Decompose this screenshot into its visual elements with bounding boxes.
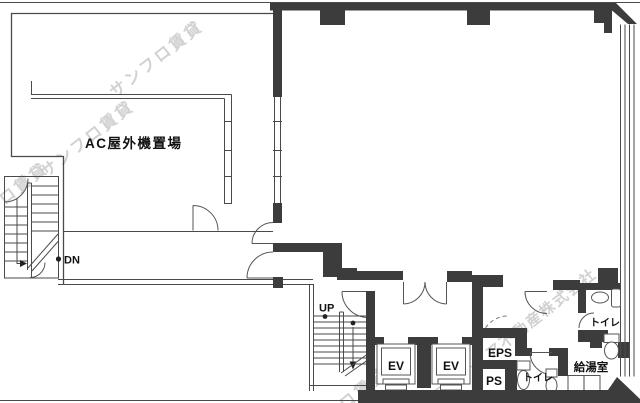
- kitchen-corner-block: [590, 336, 602, 348]
- ps-label: PS: [486, 374, 502, 388]
- north-east-corner-step: [604, 23, 612, 33]
- kitchen-label: 給湯室: [574, 360, 609, 374]
- east-wall-pier: [598, 268, 618, 283]
- core-north-wall-left: [357, 271, 403, 280]
- elevator-door-sill: [383, 379, 409, 384]
- shelf-unit: [612, 289, 621, 307]
- elevator-label: EV: [388, 359, 404, 373]
- core-east-wall: [472, 287, 483, 395]
- up-staircase: UP: [309, 284, 367, 391]
- elevator-door-sill: [438, 379, 464, 384]
- shaft-middle-wall: [417, 345, 431, 388]
- ac-area-door-swing: [193, 206, 218, 231]
- west-door-swing: [247, 252, 273, 278]
- dn-stair-treads-right: [31, 186, 59, 231]
- up-stair-rails: [340, 312, 344, 372]
- toilet-upper-west-wall: [578, 285, 586, 313]
- floorplan-page: サンフロ賃貸 サンフロ賃貸 サンフロ賃貸 サンフロンティア不動産株式会社 サンフ…: [0, 0, 640, 403]
- toilet-lower-label: トイレ: [523, 372, 553, 384]
- ac-area-label: AC屋外機置場: [85, 135, 183, 151]
- sink-basin: [592, 292, 609, 303]
- up-marker-dot: [323, 314, 328, 319]
- elevator-shafts: EV EV: [366, 287, 483, 395]
- up-label: UP: [319, 303, 334, 315]
- elevator-door-sill: [386, 385, 407, 390]
- kitchenette-room: 給湯室: [558, 348, 609, 392]
- west-wall-pier: [273, 277, 283, 288]
- toilet-upper-label: トイレ: [590, 317, 620, 329]
- east-window-lines: [621, 25, 635, 377]
- elevator-door-sill: [441, 385, 462, 390]
- north-wall-column: [320, 10, 345, 25]
- dn-label: DN: [64, 255, 80, 267]
- up-stair-enclosure: [309, 284, 366, 391]
- north-wall-column: [467, 10, 490, 25]
- eps-label: EPS: [488, 346, 512, 360]
- dn-stair-treads-left: [5, 207, 28, 261]
- toilet-upper-room: トイレ: [590, 289, 621, 359]
- toilet-upper-west-spur: [553, 280, 580, 290]
- hall-west-door-swing: [342, 292, 368, 318]
- west-wall-middle: [273, 203, 282, 223]
- west-wall-lower-band: [273, 243, 342, 252]
- dn-stair-rails: [28, 183, 32, 278]
- kitchen-west-wall: [558, 348, 568, 376]
- core-north-wall-right: [447, 271, 472, 282]
- toilet-lower-room: トイレ: [515, 348, 558, 394]
- west-window-lines: [273, 97, 282, 203]
- core-north-wall-step: [337, 268, 357, 280]
- eps-ps-divider: [483, 360, 505, 369]
- dn-stair-walkline: [17, 198, 20, 264]
- elevator-1: EV: [377, 344, 415, 390]
- elevator-2: EV: [432, 344, 470, 390]
- main-room-walls: [247, 3, 637, 377]
- toilet-bowl: [605, 342, 619, 359]
- eps-east-wall: [515, 336, 527, 350]
- corridor-north-wall: [472, 275, 503, 287]
- site-boundary: [0, 3, 640, 401]
- west-strip: [58, 232, 313, 285]
- entrance-double-door: [404, 282, 447, 304]
- ps-east-wall: [505, 360, 517, 392]
- floorplan-drawing: サンフロ賃貸 サンフロ賃貸 サンフロ賃貸 サンフロンティア不動産株式会社 サンフ…: [0, 0, 640, 403]
- north-east-corner-block: [594, 10, 612, 23]
- south-east-chamfer: [608, 377, 640, 403]
- ac-outdoor-unit-area: AC屋外機置場: [12, 14, 274, 285]
- toilet-tank: [604, 334, 619, 343]
- up-stair-treads: [314, 316, 368, 364]
- up-marker-dot: [351, 321, 356, 326]
- watermark-layer: サンフロ賃貸 サンフロ賃貸 サンフロ賃貸 サンフロンティア不動産株式会社 サンフ…: [0, 16, 600, 403]
- dn-stair-breakline: [28, 234, 58, 271]
- elevator-label: EV: [443, 359, 459, 373]
- watermark-text: サンフロ賃貸: [106, 16, 207, 101]
- dn-marker-dot: [56, 256, 61, 261]
- toilet-lower-north-wall: [515, 348, 532, 356]
- west-door-swing: [252, 223, 273, 244]
- toilet-tank: [517, 361, 530, 370]
- east-pipe-chase: [618, 342, 630, 358]
- west-wall-upper: [273, 3, 282, 97]
- south-wall-band: [358, 390, 610, 403]
